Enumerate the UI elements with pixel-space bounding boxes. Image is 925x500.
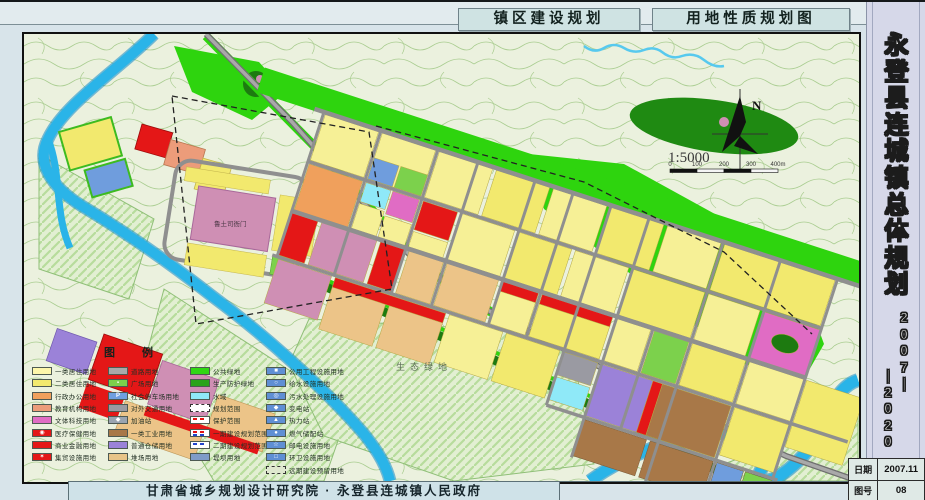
legend-item: 保护范围 (190, 414, 262, 426)
legend-item: 水域 (190, 390, 262, 402)
legend-swatch (190, 367, 210, 375)
legend-swatch (32, 404, 52, 412)
legend-swatch (190, 416, 210, 424)
legend-label: 保护范围 (213, 415, 241, 425)
legend-label: 加油站 (131, 415, 152, 425)
legend-item: ■公用工程设施用地 (266, 365, 344, 377)
date-value: 2007.11 (878, 459, 925, 481)
title-char: 0 (896, 343, 912, 360)
legend-item: P社会停车场用地 (108, 390, 186, 402)
title-char: 镇 (867, 166, 925, 193)
legend-symbol: ◆ (267, 404, 285, 413)
legend-item: ◎污水处理设施用地 (266, 390, 344, 402)
title-char: 城 (867, 139, 925, 166)
legend-item: 规划范围 (190, 402, 262, 414)
legend-label: 行政办公用地 (55, 391, 96, 401)
legend-symbol: □ (267, 453, 285, 462)
title-char: 规 (867, 246, 925, 273)
legend-item: ◉医疗保健用地 (32, 426, 104, 438)
legend-item: 教育机构用地 (32, 402, 104, 414)
legend-item: ○给水设施用地 (266, 377, 344, 389)
legend-swatch: ■ (266, 367, 286, 375)
scale-tick: 300 (746, 162, 757, 168)
legend-column: 一类居住用地二类居住用地行政办公用地教育机构用地文体科技用地◉医疗保健用地商业金… (32, 365, 104, 476)
legend-swatch (190, 404, 210, 412)
legend-swatch: ◆ (266, 404, 286, 412)
legend-label: 公共绿地 (213, 366, 241, 376)
legend-label: 社会停车场用地 (131, 391, 179, 401)
legend-swatch (32, 379, 52, 387)
date-label: 日期 (849, 459, 878, 481)
legend-swatch (108, 404, 128, 412)
legend-label: 规划范围 (213, 403, 241, 413)
legend-title: 图 例 (104, 344, 334, 360)
legend-swatch (108, 453, 128, 461)
legend-swatch (32, 367, 52, 375)
legend-item: 文体科技用地 (32, 414, 104, 426)
legend-label: 堆场用地 (131, 452, 159, 462)
title-right-box: 用地性质规划图 (652, 8, 850, 31)
legend-item: 堤坝用地 (190, 451, 262, 463)
footer-extension-box (558, 481, 858, 500)
sheet-number-label: 图号 (849, 480, 878, 500)
legend-item: ▪广场用地 (108, 377, 186, 389)
legend-label: 生产防护绿地 (213, 378, 254, 388)
legend-swatch (108, 367, 128, 375)
legend-swatch: ◆ (108, 416, 128, 424)
legend-swatch (108, 429, 128, 437)
legend-symbol: ▪ (109, 379, 127, 388)
legend-column: 公共绿地生产防护绿地水域规划范围保护范围一期建设规划范围二期建设规划范围堤坝用地 (190, 365, 262, 476)
period-end: —2020 (880, 368, 896, 451)
legend-swatch: ◎ (266, 392, 286, 400)
legend-label: 邮电设施用地 (289, 440, 330, 450)
legend-item: ◆加油站 (108, 414, 186, 426)
legend-swatch: ◉ (32, 429, 52, 437)
legend-symbol: ▲ (267, 416, 285, 425)
attribution-box: 甘肃省城乡规划设计研究院 · 永登县连城镇人民政府 (68, 481, 560, 500)
legend-swatch (190, 453, 210, 461)
legend-item: 二类居住用地 (32, 377, 104, 389)
title-char: 0 (896, 327, 912, 344)
legend-item: 堆场用地 (108, 451, 186, 463)
title-char: 7 (896, 360, 912, 377)
title-char: 2 (880, 385, 896, 402)
legend-item: ◆变电站 (266, 402, 344, 414)
legend-label: 一类工业用地 (131, 428, 172, 438)
legend-swatch: □ (266, 453, 286, 461)
period-start: 2007— (896, 310, 912, 393)
legend-column: ■公用工程设施用地○给水设施用地◎污水处理设施用地◆变电站▲热力站●燃气储配站☆… (266, 365, 344, 476)
legend-item: 远期建设预留用地 (266, 463, 344, 475)
title-char: 体 (867, 219, 925, 246)
sheet-info-table: 日期 2007.11 图号 08 (848, 458, 925, 500)
legend-label: 集贸设施用地 (55, 452, 96, 462)
legend-label: 医疗保健用地 (55, 428, 96, 438)
title-char: — (896, 376, 913, 392)
legend-symbol: ◆ (109, 416, 127, 425)
legend-item: 普通仓储用地 (108, 439, 186, 451)
title-char: 2 (880, 418, 896, 435)
title-char: 0 (880, 434, 896, 451)
legend-item: 一类居住用地 (32, 365, 104, 377)
north-label: N (752, 98, 762, 113)
legend-label: 公用工程设施用地 (289, 366, 344, 376)
legend-label: 文体科技用地 (55, 415, 96, 425)
legend-label: 燃气储配站 (289, 428, 324, 438)
eco-green-label: 生态绿地 (396, 361, 452, 372)
legend-label: 污水处理设施用地 (289, 391, 344, 401)
legend-swatch (32, 392, 52, 400)
legend-label: 道路用地 (131, 366, 159, 376)
legend-symbol: ◎ (267, 392, 285, 401)
legend-item: ✶集贸设施用地 (32, 451, 104, 463)
legend-item: ●燃气储配站 (266, 426, 344, 438)
legend-column: 道路用地▪广场用地P社会停车场用地对外交通用地◆加油站一类工业用地普通仓储用地堆… (108, 365, 186, 476)
legend-label: 变电站 (289, 403, 310, 413)
title-char: 县 (867, 86, 925, 113)
title-char: 划 (867, 272, 925, 299)
legend-item: 商业金融用地 (32, 439, 104, 451)
legend-swatch (32, 416, 52, 424)
legend-symbol: ■ (267, 367, 285, 376)
legend-swatch (190, 429, 210, 437)
title-char: 2 (896, 310, 912, 327)
legend-swatch (190, 379, 210, 387)
legend-label: 普通仓储用地 (131, 440, 172, 450)
legend-label: 二期建设规划范围 (213, 440, 268, 450)
legend-item: 二期建设规划范围 (190, 439, 262, 451)
plan-sheet: 镇区建设规划 用地性质规划图 (0, 0, 925, 500)
scale-text: 1:5000 (668, 150, 710, 166)
table-row: 日期 2007.11 (849, 459, 925, 481)
title-char: 连 (867, 113, 925, 140)
legend-label: 热力站 (289, 415, 310, 425)
legend-item: ☆邮电设施用地 (266, 439, 344, 451)
legend-symbol: P (109, 392, 127, 401)
legend-label: 广场用地 (131, 378, 159, 388)
sidebar: 永登县连城镇总体规划 2007— —2020 (866, 2, 925, 500)
legend-swatch (190, 392, 210, 400)
legend-item: 公共绿地 (190, 365, 262, 377)
legend-symbol: ✶ (33, 453, 51, 462)
map-frame: 鲁土司衙门 生态绿地 N 1:5000 0100200300400m 图 例 一… (22, 32, 861, 484)
heritage-label: 鲁土司衙门 (214, 219, 247, 228)
legend-symbol: ○ (267, 379, 285, 388)
legend-symbol: ◉ (33, 429, 51, 438)
legend-swatch (266, 466, 286, 474)
legend-label: 水域 (213, 391, 227, 401)
title-char: 0 (880, 401, 896, 418)
sheet-number-value: 08 (878, 480, 925, 500)
title-char: 永 (867, 33, 925, 60)
legend-symbol: ● (267, 429, 285, 438)
title-left-box: 镇区建设规划 (458, 8, 640, 31)
sheet-title-vertical: 永登县连城镇总体规划 (867, 33, 925, 299)
legend-label: 堤坝用地 (213, 452, 241, 462)
table-row: 图号 08 (849, 480, 925, 500)
title-char: — (880, 368, 897, 384)
legend-swatch: ● (266, 429, 286, 437)
legend-swatch: ☆ (266, 441, 286, 449)
legend-item: 对外交通用地 (108, 402, 186, 414)
legend-swatch: ▪ (108, 379, 128, 387)
scale-tick: 400m (770, 162, 785, 168)
title-char: 总 (867, 193, 925, 220)
legend-swatch: ▲ (266, 416, 286, 424)
legend-label: 一期建设规划范围 (213, 428, 268, 438)
legend-label: 环卫设施用地 (289, 452, 330, 462)
legend-item: ▲热力站 (266, 414, 344, 426)
legend-item: 一类工业用地 (108, 426, 186, 438)
legend-item: 道路用地 (108, 365, 186, 377)
scale-tick: 100 (692, 162, 703, 168)
legend-swatch (190, 441, 210, 449)
legend-swatch: ○ (266, 379, 286, 387)
scale-tick: 200 (719, 162, 730, 168)
title-char: 登 (867, 60, 925, 87)
legend-item: □环卫设施用地 (266, 451, 344, 463)
legend-label: 教育机构用地 (55, 403, 96, 413)
legend-label: 商业金融用地 (55, 440, 96, 450)
legend-label: 远期建设预留用地 (289, 465, 344, 475)
legend-label: 一类居住用地 (55, 366, 96, 376)
legend-swatch: P (108, 392, 128, 400)
legend-label: 对外交通用地 (131, 403, 172, 413)
legend-item: 一期建设规划范围 (190, 426, 262, 438)
legend-swatch (32, 441, 52, 449)
legend-label: 给水设施用地 (289, 378, 330, 388)
legend-label: 二类居住用地 (55, 378, 96, 388)
legend-symbol: ☆ (267, 441, 285, 450)
legend: 图 例 一类居住用地二类居住用地行政办公用地教育机构用地文体科技用地◉医疗保健用… (32, 344, 334, 476)
legend-item: 生产防护绿地 (190, 377, 262, 389)
legend-swatch: ✶ (32, 453, 52, 461)
legend-item: 行政办公用地 (32, 390, 104, 402)
legend-swatch (108, 441, 128, 449)
